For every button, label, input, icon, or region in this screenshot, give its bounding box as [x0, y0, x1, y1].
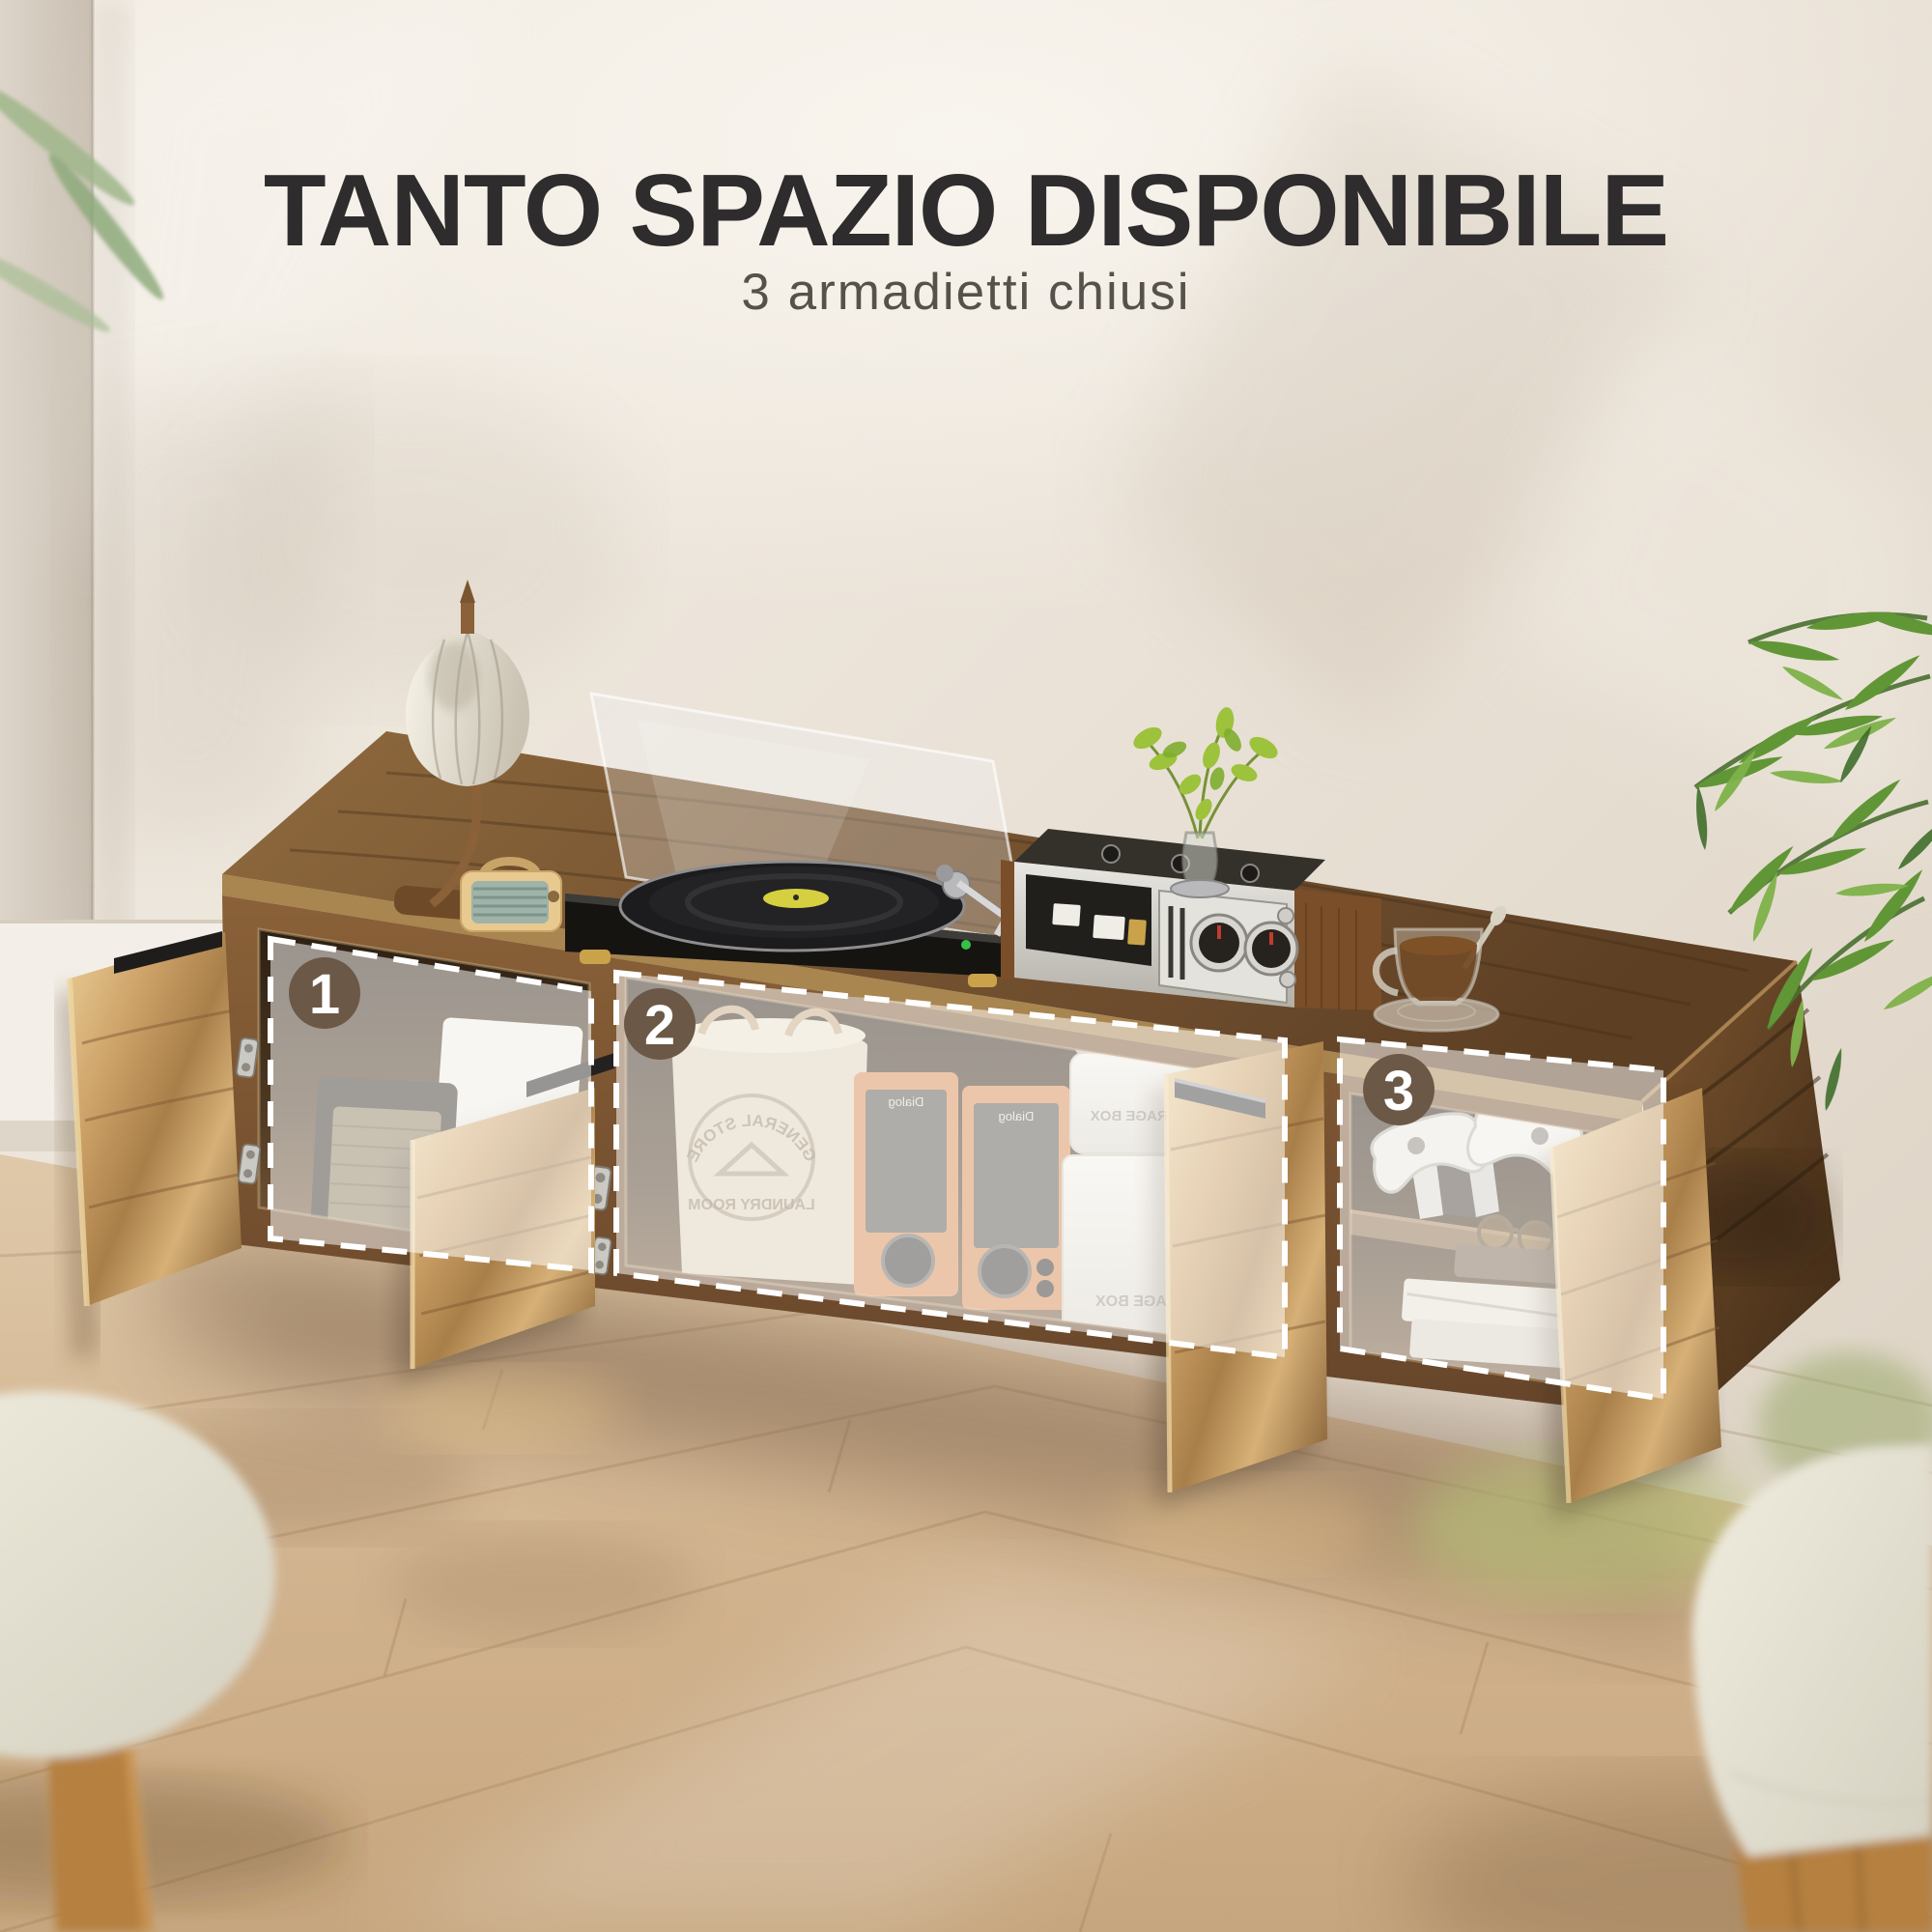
receiver-dial-right [1245, 923, 1297, 975]
badge-2: 2 [624, 988, 696, 1060]
under-glow-2 [1111, 1480, 1381, 1569]
badge-1-number: 1 [309, 963, 340, 1026]
badge-1: 1 [289, 957, 360, 1029]
receiver-dial-left [1191, 915, 1247, 971]
badge-2-number: 2 [644, 994, 675, 1057]
glass-vase [1183, 833, 1217, 885]
retro-mini-radio [461, 862, 561, 932]
under-glow-1 [382, 1370, 623, 1447]
product-marketing-image: GENERAL STORE LAUNDRY ROOM Dialog [0, 0, 1932, 1932]
badge-3: 3 [1363, 1054, 1435, 1125]
badge-3-number: 3 [1383, 1060, 1414, 1122]
headline: TANTO SPAZIO DISPONIBILE [0, 153, 1932, 270]
subheadline: 3 armadietti chiusi [0, 263, 1932, 322]
